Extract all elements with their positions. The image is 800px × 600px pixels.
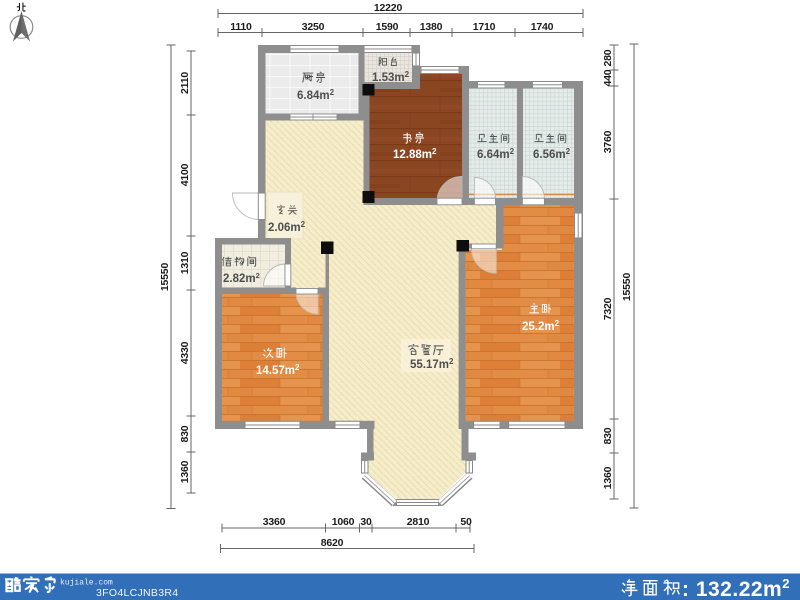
svg-text:2.82m2: 2.82m2 [223,271,260,285]
svg-text:1110: 1110 [230,21,252,33]
svg-text:1360: 1360 [602,466,614,489]
svg-text:4100: 4100 [179,163,191,186]
svg-text:3760: 3760 [602,130,614,153]
svg-text:1.53m2: 1.53m2 [372,70,410,84]
svg-text:12.88m2: 12.88m2 [393,147,437,161]
svg-text:830: 830 [602,427,614,444]
svg-text:14.57m2: 14.57m2 [256,363,300,377]
svg-text:3360: 3360 [263,516,286,528]
svg-text:6.64m2: 6.64m2 [477,147,515,161]
svg-text:1380: 1380 [420,21,443,33]
svg-text:7320: 7320 [602,297,614,320]
svg-text:8620: 8620 [321,537,344,549]
svg-text:2110: 2110 [179,72,191,94]
svg-text:1590: 1590 [376,21,399,33]
svg-text:4330: 4330 [179,341,191,364]
svg-text:3250: 3250 [302,21,325,33]
svg-text:15550: 15550 [159,263,171,292]
svg-text:2810: 2810 [407,516,430,528]
svg-text:440: 440 [602,69,614,86]
svg-text:280: 280 [602,49,614,66]
svg-text:2.06m2: 2.06m2 [268,220,306,234]
svg-text:15550: 15550 [621,273,633,302]
svg-text:25.2m2: 25.2m2 [522,319,560,333]
svg-text:1310: 1310 [179,251,191,274]
svg-text:1360: 1360 [179,460,191,483]
svg-text:50: 50 [460,516,472,528]
svg-text:55.17m2: 55.17m2 [410,357,454,371]
svg-text:30: 30 [360,516,372,528]
svg-text:3FO4LCJNB3R4: 3FO4LCJNB3R4 [96,587,178,599]
svg-text:6.56m2: 6.56m2 [533,147,571,161]
svg-text:1710: 1710 [473,21,496,33]
svg-text:830: 830 [179,425,191,442]
svg-text:12220: 12220 [374,2,403,14]
svg-text:6.84m2: 6.84m2 [297,88,335,102]
svg-text:: 132.22m2: : 132.22m2 [682,576,790,600]
svg-text:1740: 1740 [531,21,554,33]
svg-text:1060: 1060 [332,516,355,528]
